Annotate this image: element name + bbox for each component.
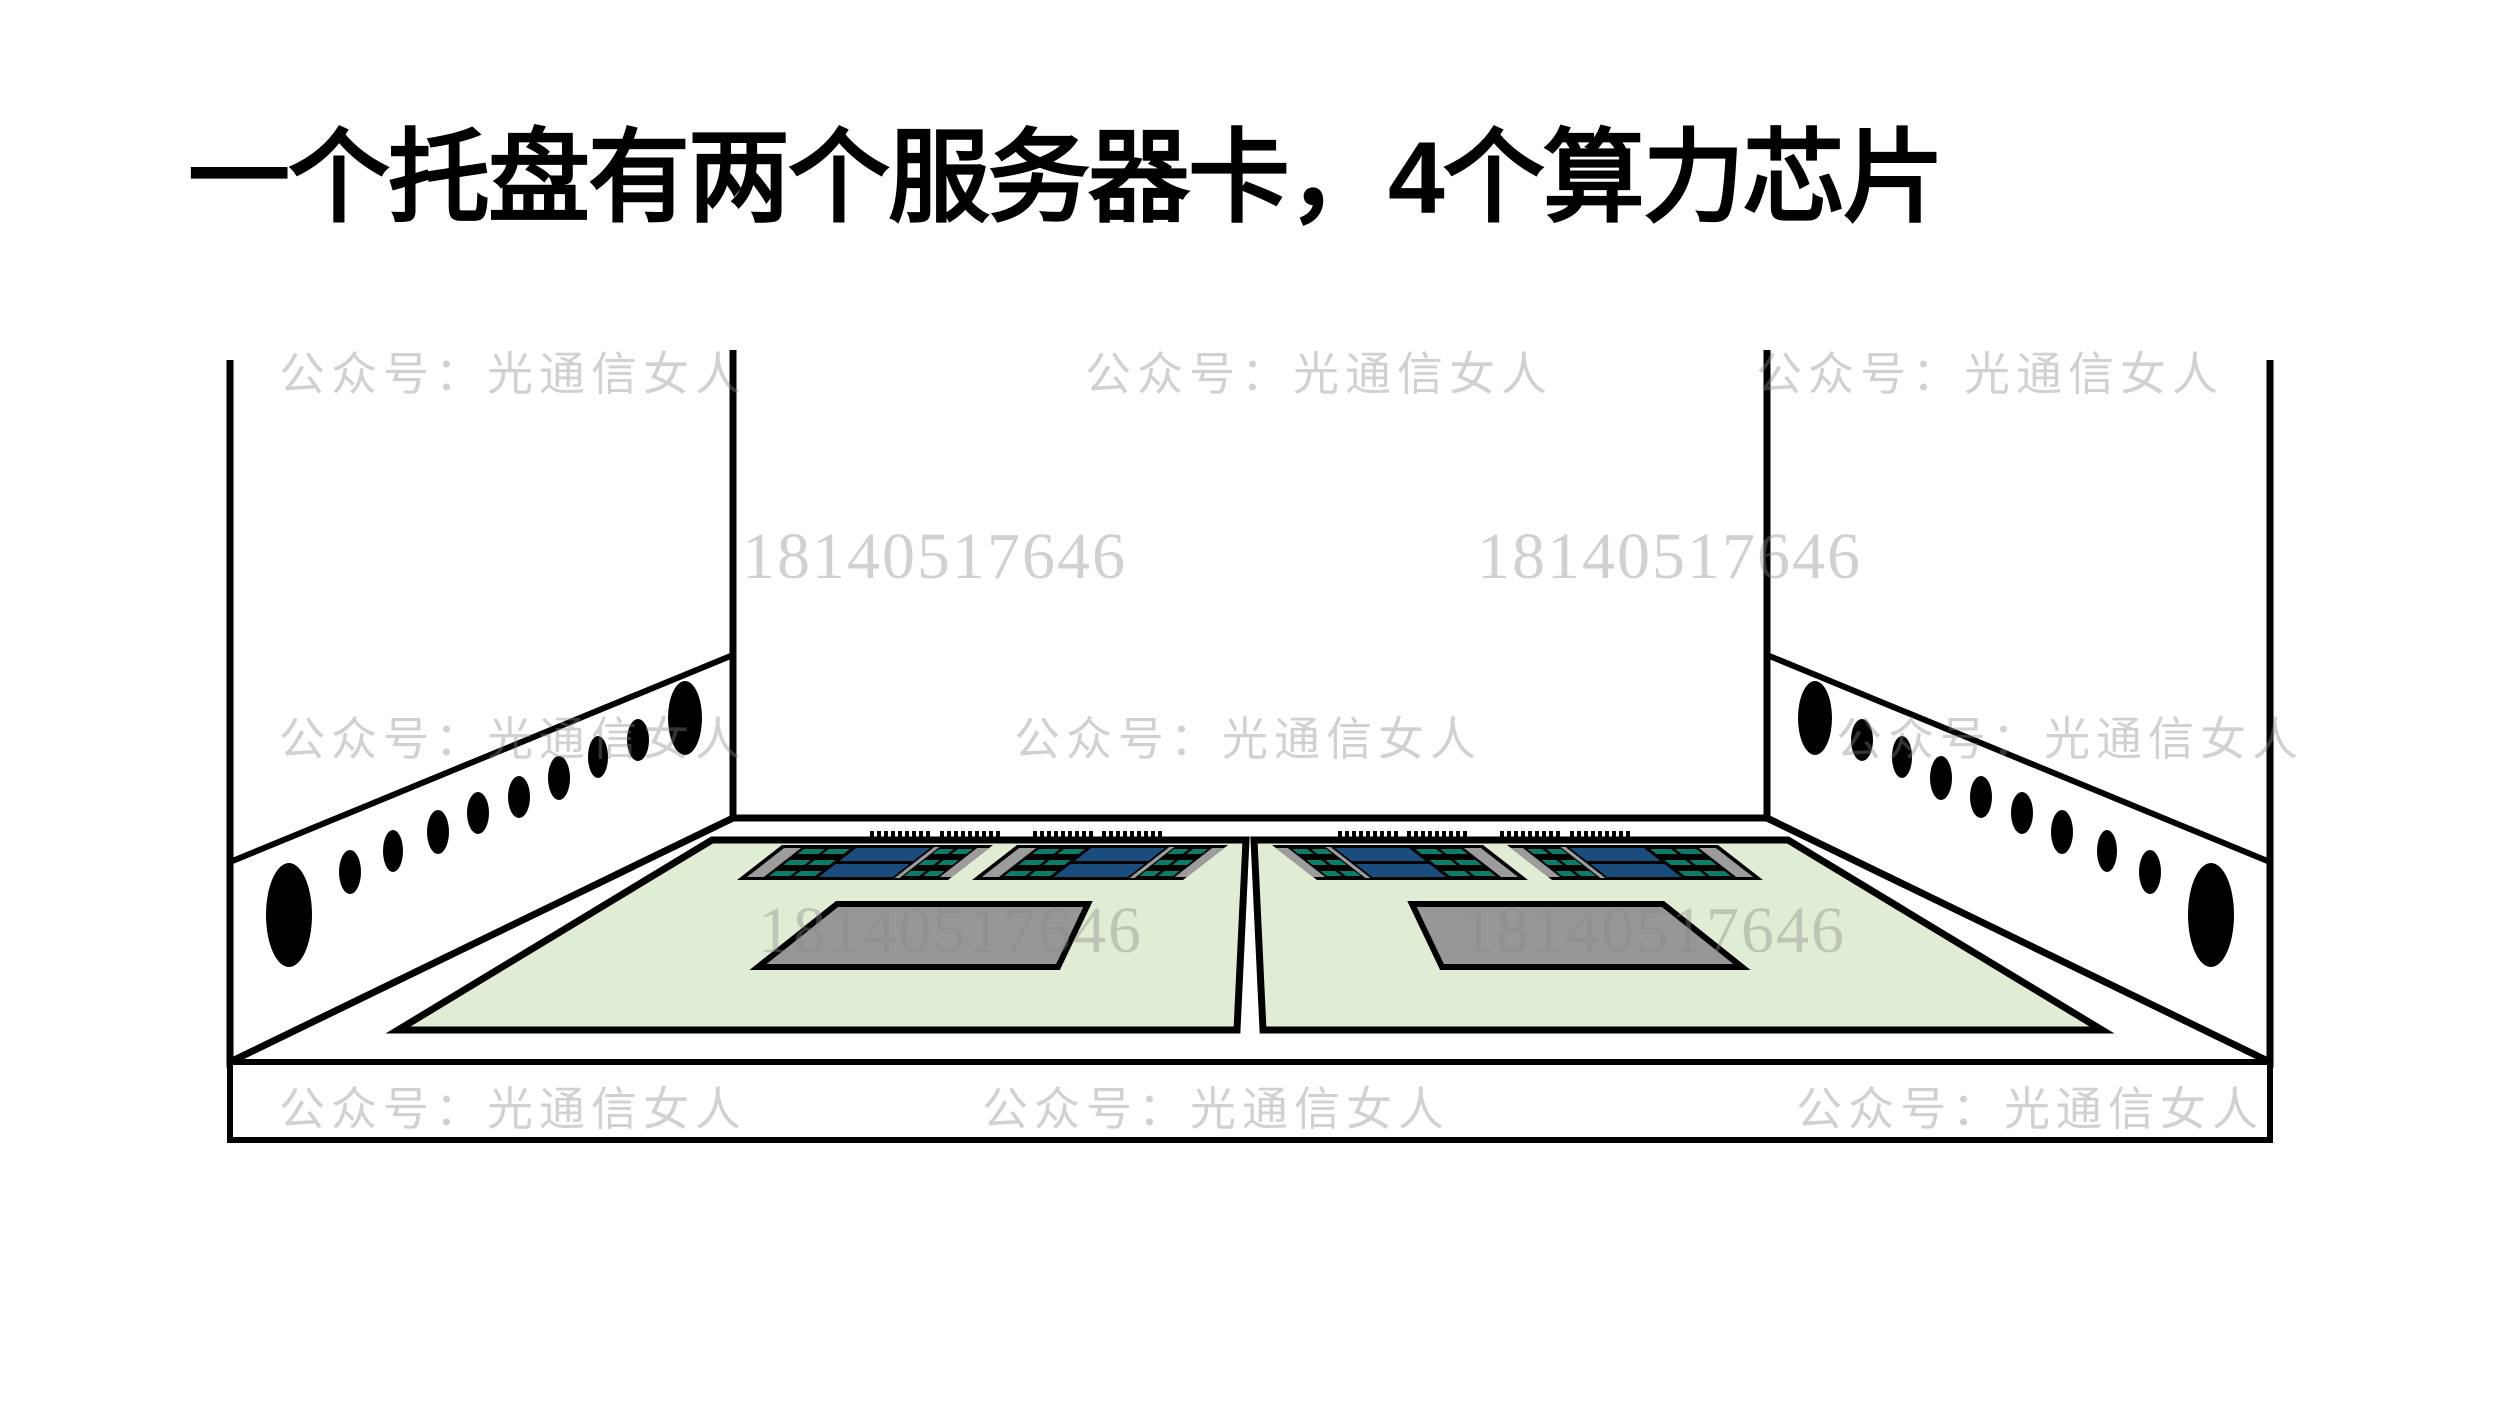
watermark-phone: 18140517646 — [758, 894, 1143, 967]
page-title: 一个托盘有两个服务器卡，4个算力芯片 — [188, 121, 1943, 235]
watermark-account: 公众号：光通信女人 — [982, 1084, 1450, 1135]
watermark-phone: 18140517646 — [742, 520, 1127, 593]
watermark-account: 公众号：光通信女人 — [1836, 714, 2304, 765]
watermark-account: 公众号：光通信女人 — [1085, 349, 1553, 400]
watermark-account: 公众号：光通信女人 — [279, 349, 747, 400]
watermark-account: 公众号：光通信女人 — [1756, 349, 2224, 400]
watermark-account: 公众号：光通信女人 — [279, 1084, 747, 1135]
server-tray-diagram: 公众号：光通信女人 公众号：光通信女人 公众号：光通信女人 1814051764… — [0, 0, 2500, 1406]
watermark-account: 公众号：光通信女人 — [279, 714, 747, 765]
watermark-account: 公众号：光通信女人 — [1014, 714, 1482, 765]
watermark-phone: 18140517646 — [1477, 520, 1862, 593]
watermark-account: 公众号：光通信女人 — [1796, 1084, 2264, 1135]
watermark-phone: 18140517646 — [1461, 894, 1846, 967]
